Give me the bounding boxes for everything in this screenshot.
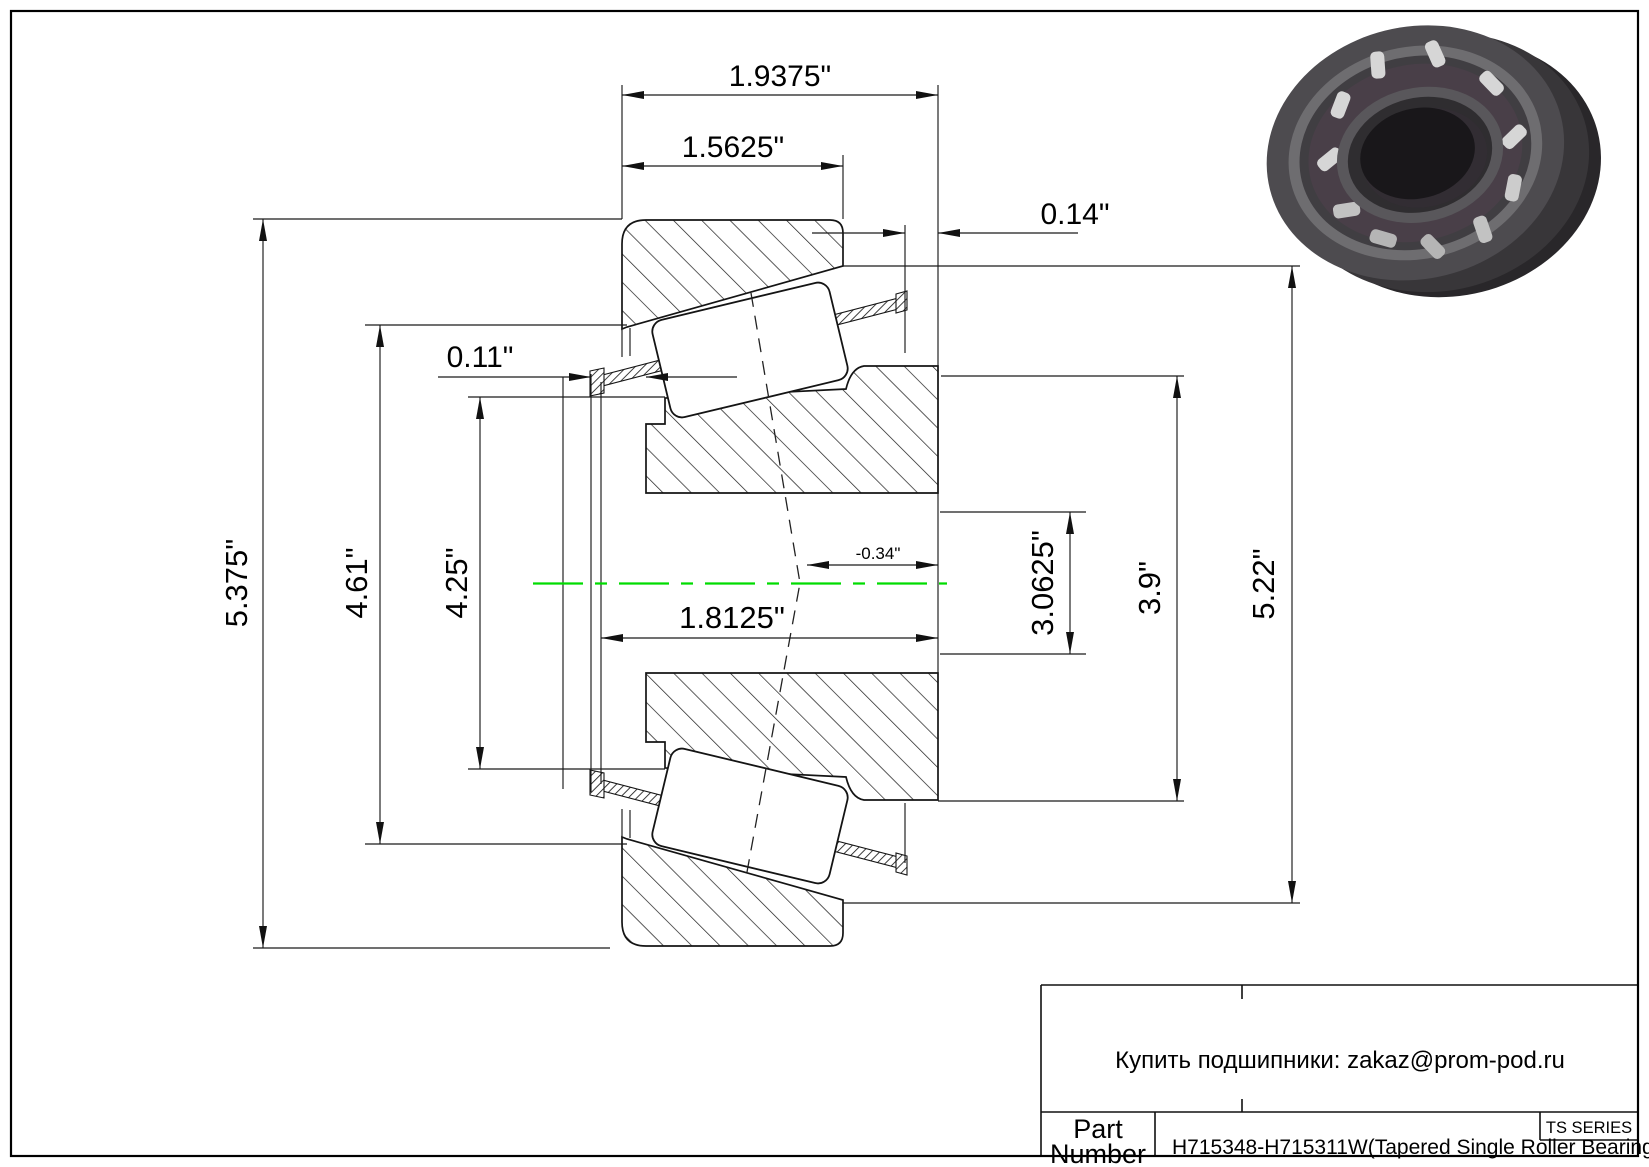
- dim-back-offset: 0.14": [812, 198, 1110, 237]
- dim-4-25-label: 4.25": [439, 547, 474, 618]
- dim-center-offset: -0.34": [807, 544, 938, 569]
- dim-overall-width-label: 1.9375": [729, 60, 831, 93]
- technical-drawing-svg: 1.9375" 1.5625" 0.14" 0.11": [0, 0, 1649, 1167]
- dim-4-61: 4.61": [339, 325, 384, 844]
- dim-3-9-label: 3.9": [1132, 561, 1167, 615]
- dim-5-22: 5.22": [1246, 266, 1296, 903]
- contact-text: Купить подшипники: zakaz@prom-pod.ru: [1115, 1047, 1565, 1074]
- series-label: TS SERIES: [1546, 1119, 1632, 1137]
- dim-cup-width-label: 1.5625": [682, 131, 784, 164]
- dim-bore-diameter-label: 3.0625": [1025, 530, 1060, 636]
- dim-cone-width-label: 1.8125": [679, 600, 785, 635]
- dim-outer-diameter: 5.375": [219, 219, 267, 948]
- part-number-label-line2: Number: [1050, 1139, 1146, 1167]
- dim-4-61-label: 4.61": [339, 547, 374, 618]
- dim-overall-width: 1.9375": [622, 60, 938, 99]
- dim-cone-width: 1.8125": [601, 600, 938, 642]
- cage-lower-left-lip: [590, 770, 604, 798]
- cage-upper-left-lip: [590, 368, 604, 396]
- bearing-3d-image: [1239, 0, 1628, 336]
- drawing-page: 1.9375" 1.5625" 0.14" 0.11": [0, 0, 1649, 1167]
- dim-center-offset-label: -0.34": [856, 544, 901, 563]
- dim-front-offset-label: 0.11": [447, 341, 514, 374]
- bearing-cross-section: [533, 220, 947, 946]
- dim-cup-width: 1.5625": [622, 131, 843, 170]
- dim-3-9: 3.9": [1132, 376, 1181, 801]
- dim-outer-diameter-label: 5.375": [219, 539, 254, 628]
- dim-bore-diameter: 3.0625": [1025, 512, 1074, 654]
- dim-4-25: 4.25": [439, 397, 484, 769]
- dim-5-22-label: 5.22": [1246, 548, 1281, 619]
- dim-back-offset-label: 0.14": [1040, 198, 1109, 231]
- title-block: Купить подшипники: zakaz@prom-pod.ru TS …: [1041, 985, 1649, 1167]
